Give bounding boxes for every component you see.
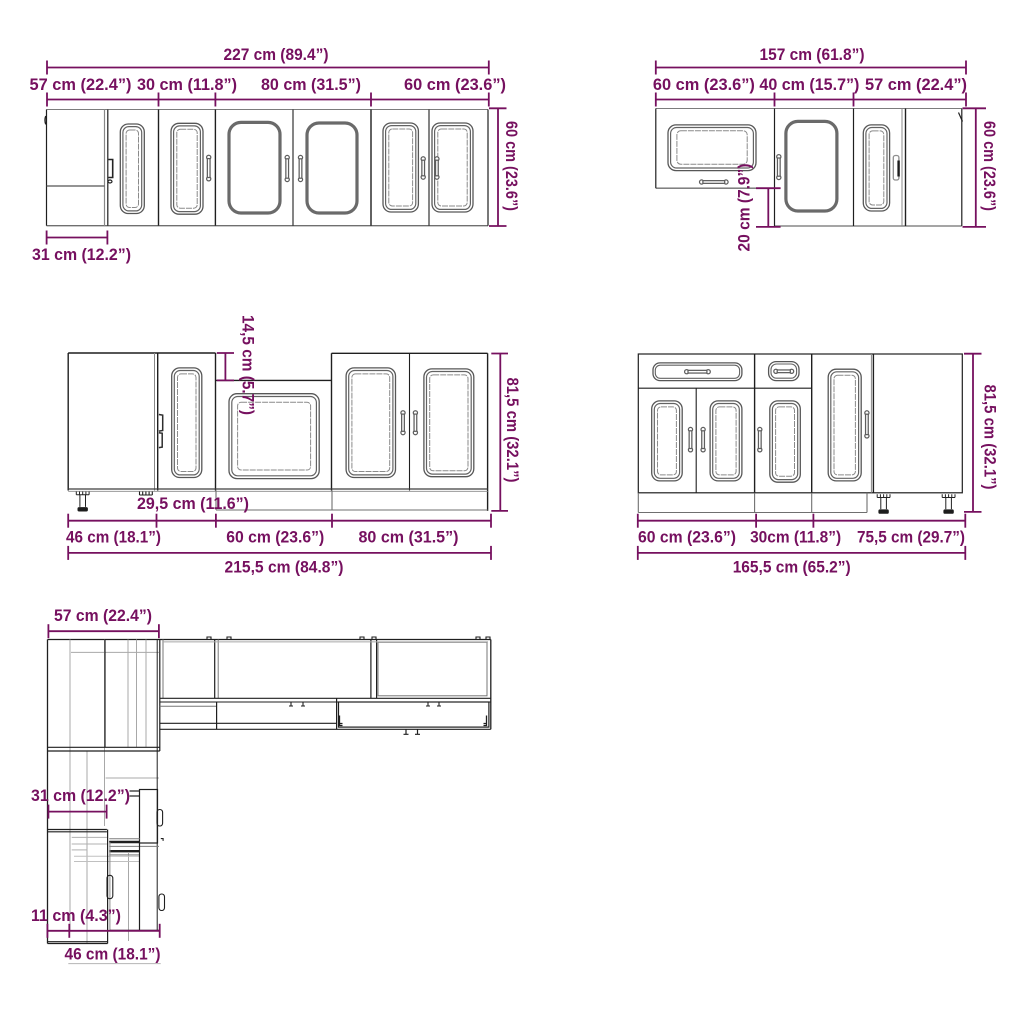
svg-text:31 cm (12.2”): 31 cm (12.2”) [31, 786, 130, 805]
svg-text:60 cm (23.6”): 60 cm (23.6”) [980, 121, 999, 211]
svg-text:227 cm (89.4”): 227 cm (89.4”) [224, 45, 329, 64]
svg-text:46 cm (18.1”): 46 cm (18.1”) [66, 528, 161, 547]
svg-text:81,5 cm (32.1”): 81,5 cm (32.1”) [503, 378, 522, 483]
svg-text:60 cm (23.6”): 60 cm (23.6”) [226, 528, 324, 547]
svg-text:57 cm (22.4”): 57 cm (22.4”) [865, 75, 967, 94]
svg-text:40 cm (15.7”): 40 cm (15.7”) [759, 75, 859, 94]
svg-text:80 cm (31.5”): 80 cm (31.5”) [359, 528, 459, 547]
svg-text:60 cm (23.6”): 60 cm (23.6”) [653, 75, 755, 94]
svg-text:80 cm (31.5”): 80 cm (31.5”) [261, 75, 361, 94]
svg-text:14,5 cm (5.7”): 14,5 cm (5.7”) [239, 315, 258, 415]
svg-text:165,5 cm (65.2”): 165,5 cm (65.2”) [733, 558, 851, 577]
svg-text:81,5 cm (32.1”): 81,5 cm (32.1”) [981, 385, 1000, 490]
svg-text:60 cm (23.6”): 60 cm (23.6”) [502, 121, 521, 211]
svg-text:20 cm (7.9”): 20 cm (7.9”) [735, 164, 754, 252]
svg-text:75,5 cm (29.7”): 75,5 cm (29.7”) [857, 528, 965, 547]
svg-text:157 cm (61.8”): 157 cm (61.8”) [760, 45, 865, 64]
svg-text:11 cm (4.3”): 11 cm (4.3”) [31, 906, 121, 925]
svg-text:215,5 cm (84.8”): 215,5 cm (84.8”) [225, 558, 344, 577]
svg-text:30 cm (11.8”): 30 cm (11.8”) [137, 75, 237, 94]
svg-text:30cm (11.8”): 30cm (11.8”) [750, 528, 841, 547]
svg-text:60 cm (23.6”): 60 cm (23.6”) [404, 75, 506, 94]
svg-text:46 cm (18.1”): 46 cm (18.1”) [65, 945, 161, 964]
svg-text:31 cm (12.2”): 31 cm (12.2”) [32, 245, 131, 264]
svg-text:29,5 cm (11.6”): 29,5 cm (11.6”) [137, 494, 249, 513]
svg-text:60 cm (23.6”): 60 cm (23.6”) [638, 528, 736, 547]
svg-text:57 cm (22.4”): 57 cm (22.4”) [30, 75, 132, 94]
svg-text:57 cm (22.4”): 57 cm (22.4”) [54, 606, 152, 625]
